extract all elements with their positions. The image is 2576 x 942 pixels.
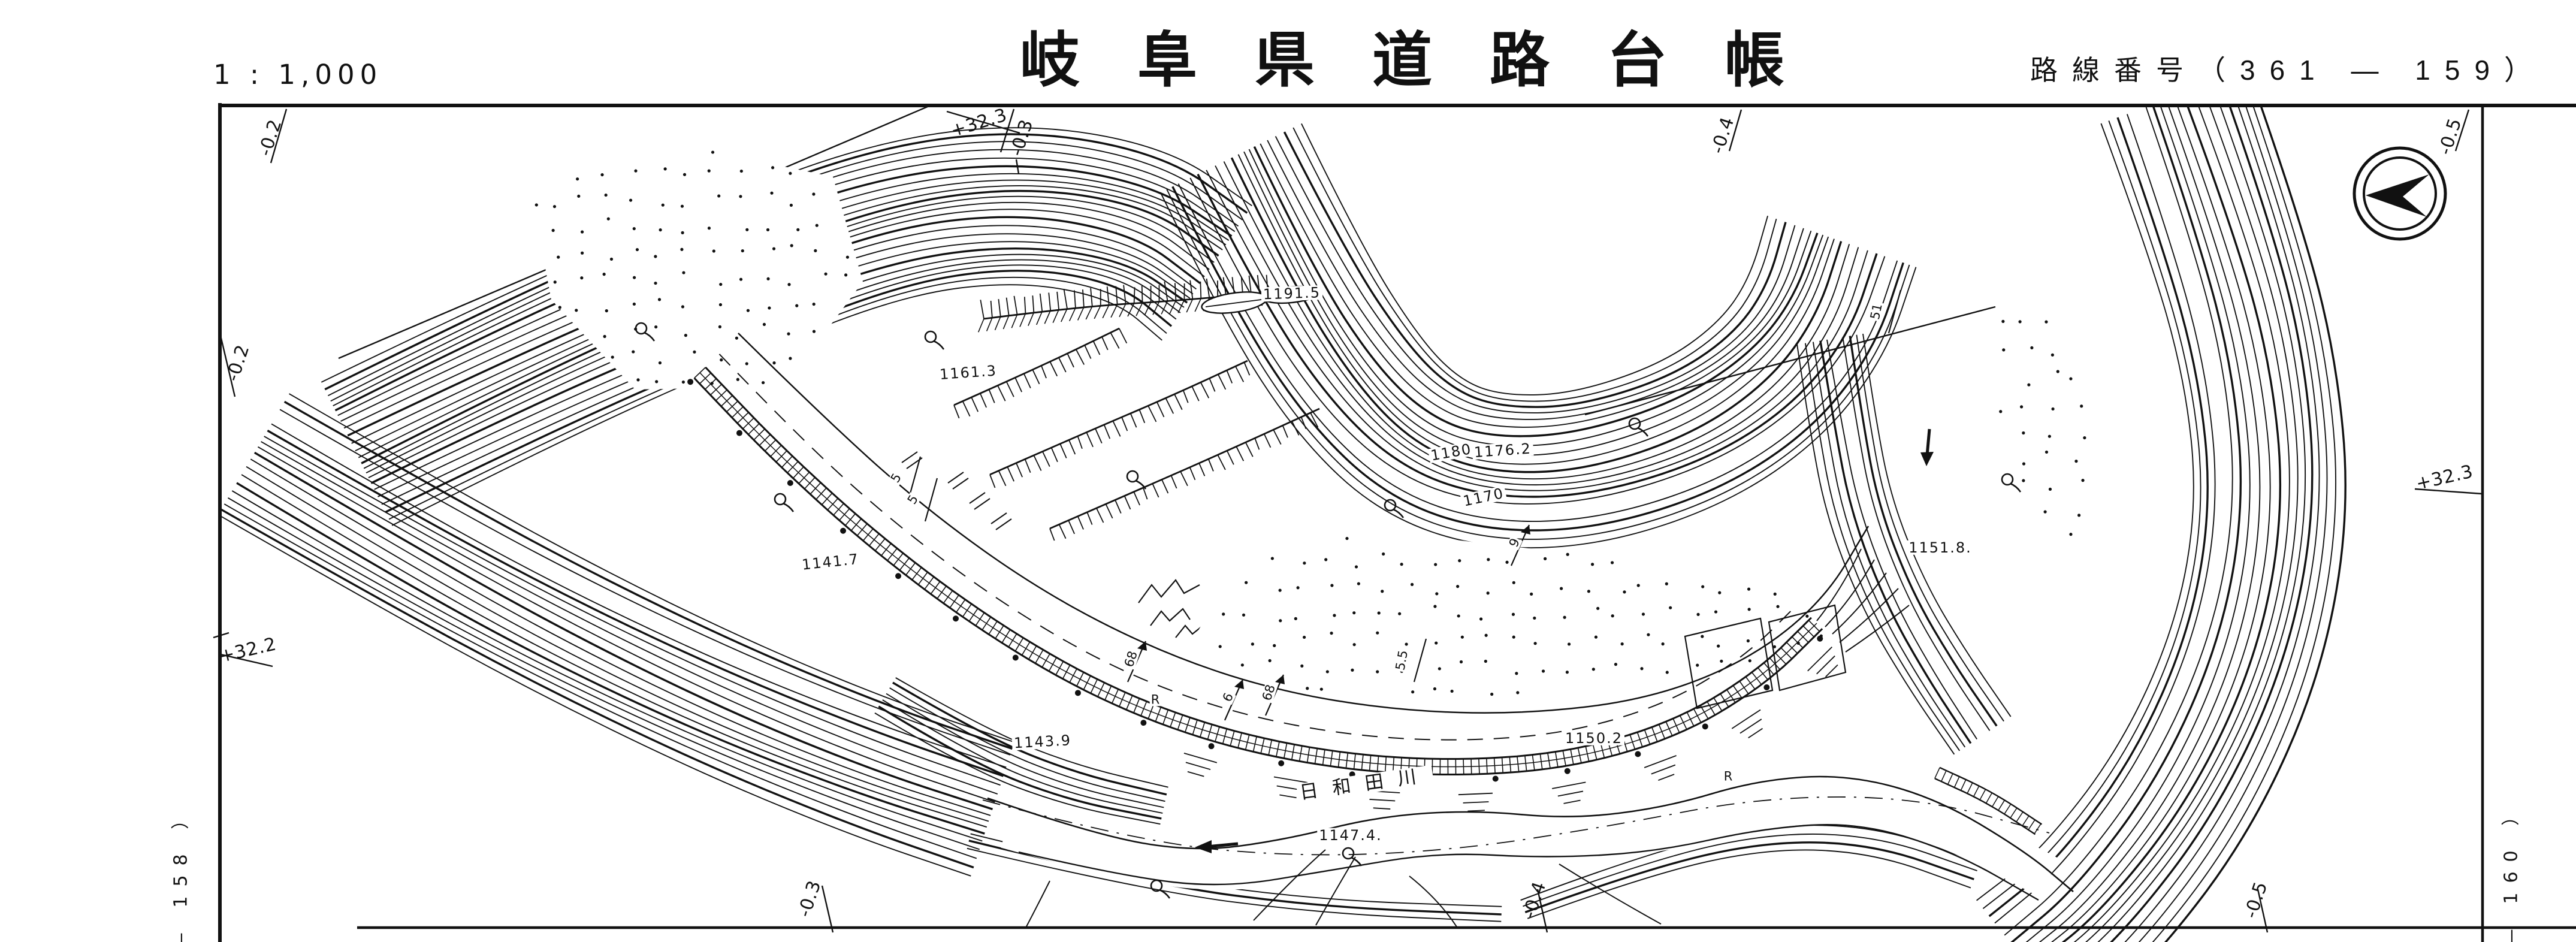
spot-elevation-label: 1151.8. <box>1907 541 1974 555</box>
map-canvas <box>0 0 2576 942</box>
route-number-label: 路線番号（361 — 159） <box>2030 56 2546 84</box>
north-arrow-icon <box>2349 143 2450 244</box>
spot-elevation-label: 1176.2 <box>1472 441 1533 460</box>
page-title: 岐阜県道路台帳 <box>1020 30 1842 91</box>
flow-arrow-south <box>1920 429 1934 466</box>
escarpment-hachures <box>954 275 1321 541</box>
scale-label: 1 : 1,000 <box>213 61 382 89</box>
conifer-symbol <box>925 331 944 349</box>
conifer-symbol <box>775 494 793 512</box>
adjacent-sheet-number-left: — 158 ） <box>173 802 191 942</box>
spot-elevation-label: 1147.4. <box>1317 828 1384 843</box>
map-artwork <box>218 71 2345 942</box>
spot-elevation-label: 1191.5 <box>1261 285 1323 302</box>
station-label: R <box>1723 770 1734 783</box>
rock-symbol <box>1138 580 1204 638</box>
spot-elevation-label: 1161.3 <box>937 363 999 382</box>
conifer-symbol <box>1629 418 1648 436</box>
conifer-symbol <box>1127 471 1146 489</box>
spot-elevation-label: 1150.2 <box>1563 731 1624 745</box>
map-sheet: 1 : 1,000 岐阜県道路台帳 路線番号（361 — 159） — 158 … <box>0 0 2576 942</box>
station-label: R <box>1150 693 1161 706</box>
spot-elevation-label: 1143.9 <box>1011 733 1073 751</box>
adjacent-sheet-number-right: — 160 ） <box>2503 798 2521 942</box>
